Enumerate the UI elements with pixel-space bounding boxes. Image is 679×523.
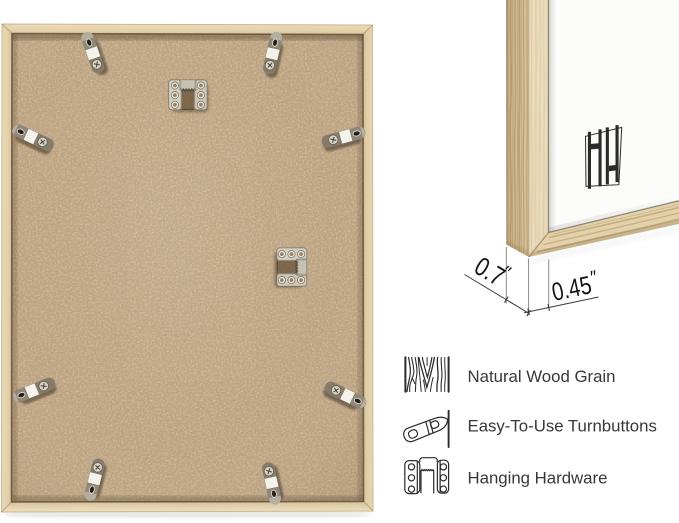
svg-text:Natural Wood Grain: Natural Wood Grain <box>468 367 616 386</box>
svg-text:Easy-To-Use Turnbuttons: Easy-To-Use Turnbuttons <box>468 416 657 435</box>
svg-text:0.45: 0.45 <box>549 270 594 306</box>
svg-text:Hanging Hardware: Hanging Hardware <box>468 469 608 488</box>
